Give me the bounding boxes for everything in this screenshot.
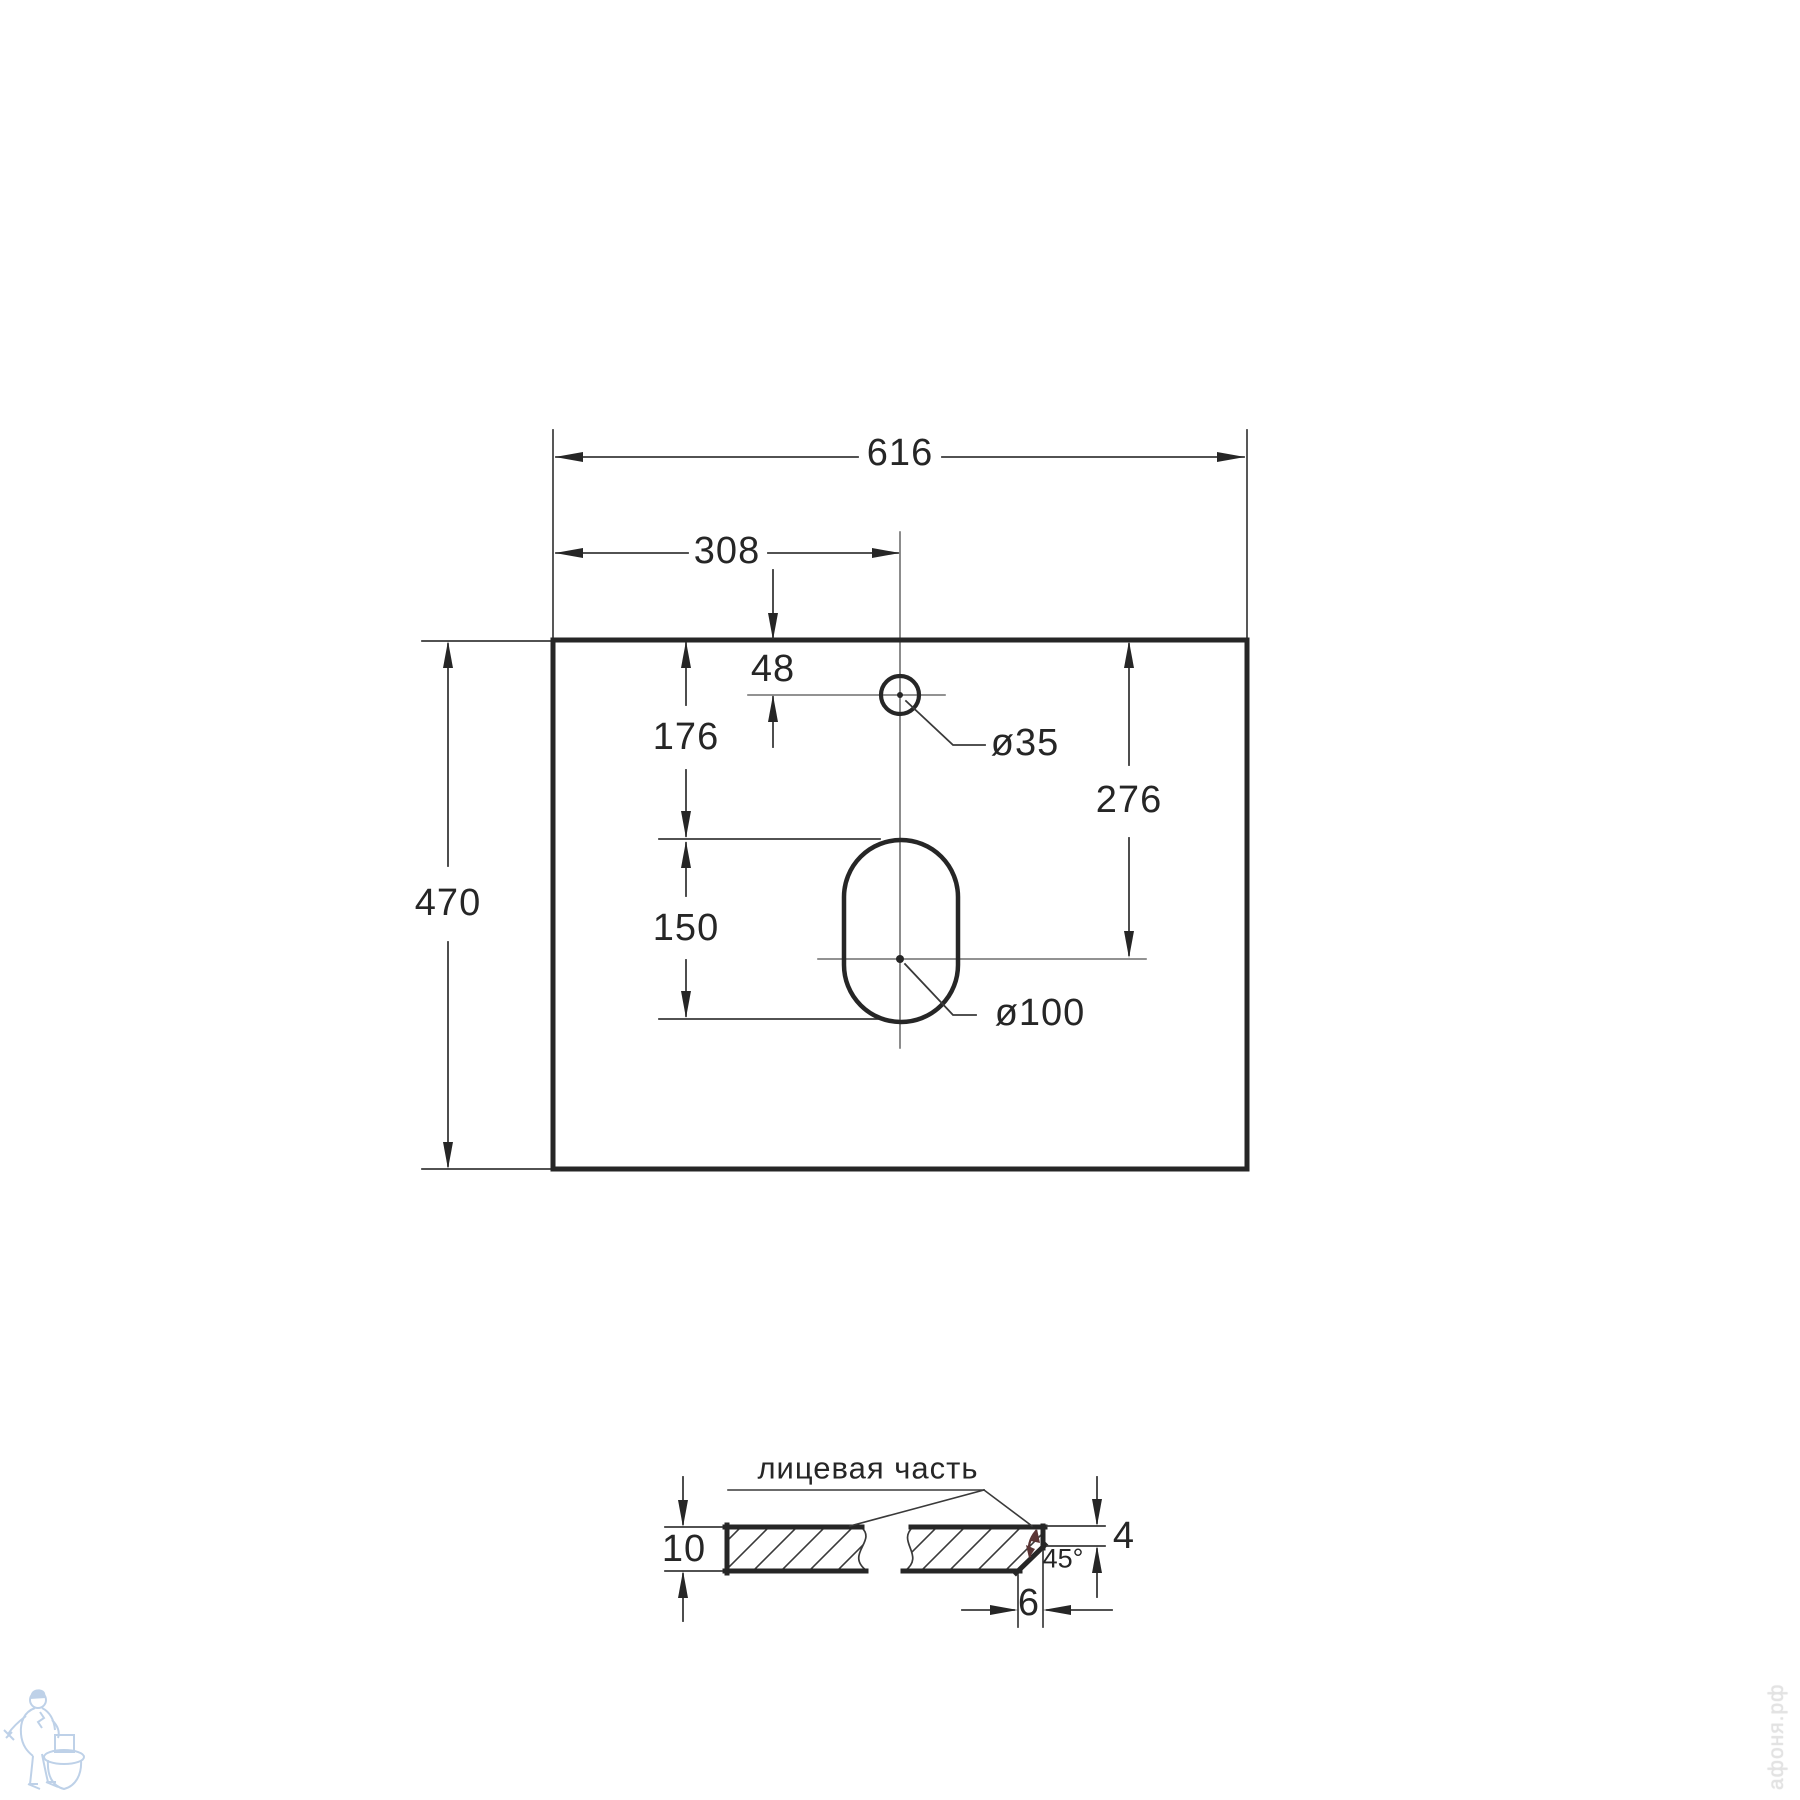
center-lines [748,532,1146,1048]
dim-overall-depth: 470 [411,884,485,922]
face-side-leader [728,1490,1032,1526]
watermark-logo [4,1689,84,1789]
dim-drain-slot-length: 150 [649,909,723,947]
watermark-site-text: афоня.рф [1765,1690,1789,1790]
section-face-side-title: лицевая часть [757,1453,978,1484]
dim-chamfer-height: 4 [1109,1517,1139,1555]
dim-chamfer-width: 6 [1014,1584,1044,1622]
drain-slot [844,840,958,1022]
technical-drawing-page: 616 308 48 ø35 176 276 470 150 ø100 лице… [0,0,1800,1800]
dim-drain-top-offset: 176 [649,718,723,756]
label-chamfer-angle: 45° [1039,1546,1088,1573]
dim-center-offset: 308 [690,532,764,570]
section-left-piece [727,1527,867,1571]
dim-drain-center-offset: 276 [1092,781,1166,819]
label-drain-hole-diameter: ø100 [991,994,1090,1032]
label-faucet-hole-diameter: ø35 [987,724,1063,762]
break-lines [859,1527,913,1571]
dim-section-thickness: 10 [658,1530,710,1568]
dim-faucet-edge-offset: 48 [747,650,799,688]
dim-overall-width: 616 [863,434,937,472]
countertop-dimension-drawing [0,0,1800,1800]
